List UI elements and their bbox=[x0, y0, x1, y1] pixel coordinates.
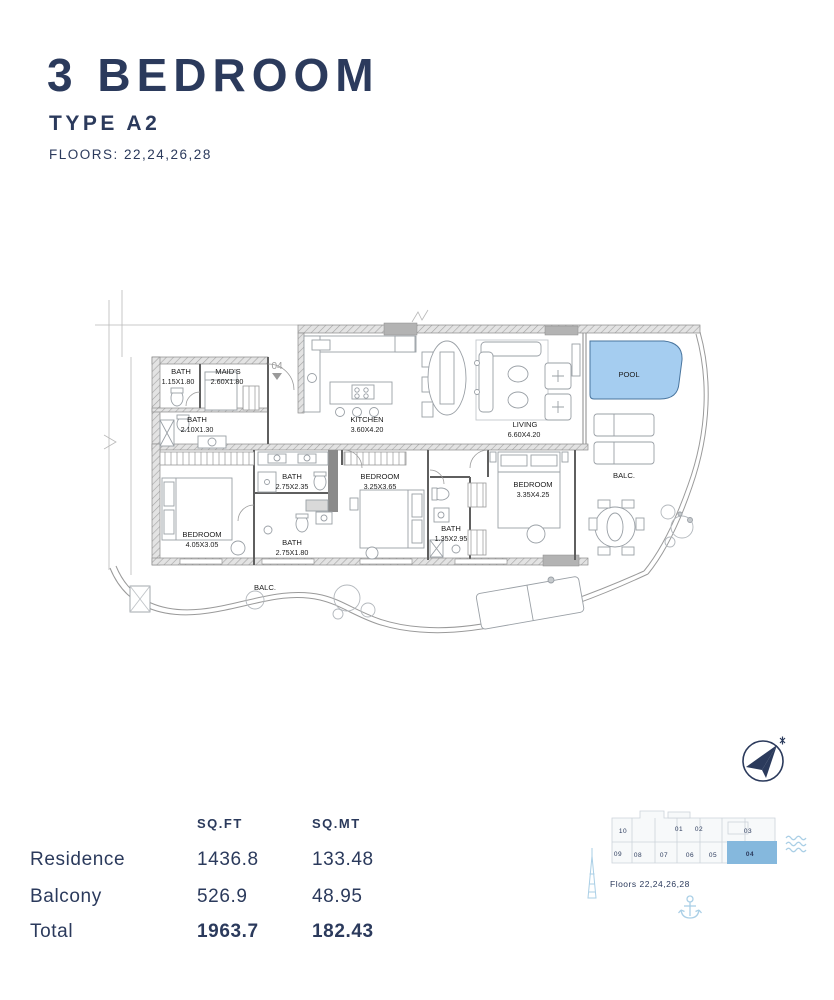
room-label: LIVING bbox=[513, 420, 538, 429]
room-dims: 3.25X3.65 bbox=[364, 482, 397, 491]
residence-sqmt: 133.48 bbox=[312, 849, 374, 871]
keyplan-unit: 09 bbox=[614, 851, 622, 858]
room-dims: 2.75X1.80 bbox=[276, 548, 309, 557]
pool-label: POOL bbox=[618, 370, 639, 379]
keyplan-unit: 02 bbox=[695, 826, 703, 833]
right-balcony-furniture bbox=[589, 414, 693, 555]
balcony-label: BALC. bbox=[613, 471, 635, 480]
room-dims: 6.60X4.20 bbox=[508, 430, 541, 439]
keyplan-caption: Floors 22,24,26,28 bbox=[610, 879, 690, 889]
col-header-sqft: SQ.FT bbox=[197, 816, 243, 831]
room-label: BATH bbox=[441, 524, 461, 533]
room-label: BEDROOM bbox=[182, 530, 221, 539]
north-compass-icon bbox=[735, 728, 795, 790]
room-dims: 2.60X1.80 bbox=[211, 377, 244, 386]
floors-label: FLOORS: 22,24,26,28 bbox=[49, 147, 212, 162]
row-label-residence: Residence bbox=[30, 849, 125, 871]
room-dims: 3.60X4.20 bbox=[351, 425, 384, 434]
living-furniture bbox=[422, 340, 580, 420]
balcony-label: BALC. bbox=[254, 583, 276, 592]
kitchen-furniture bbox=[304, 336, 416, 417]
room-label: BEDROOM bbox=[360, 472, 399, 481]
room-dims: 2.10X1.30 bbox=[181, 425, 214, 434]
keyplan-unit: 07 bbox=[660, 852, 668, 859]
keyplan-unit: 06 bbox=[686, 852, 694, 859]
keyplan-unit: 01 bbox=[675, 826, 683, 833]
keyplan-unit: 03 bbox=[744, 828, 752, 835]
keyplan-unit: 10 bbox=[619, 828, 627, 835]
plumbing-wall bbox=[328, 450, 338, 512]
room-label: BATH bbox=[282, 472, 302, 481]
page-title: 3 BEDROOM bbox=[47, 48, 380, 102]
keyplan-unit-highlighted: 04 bbox=[746, 851, 754, 858]
unit-type-label: TYPE A2 bbox=[49, 112, 160, 136]
room-dims: 4.05X3.05 bbox=[186, 540, 219, 549]
floorplan-page: 3 BEDROOM TYPE A2 FLOORS: 22,24,26,28 bbox=[0, 0, 834, 1000]
anchor-icon bbox=[679, 896, 702, 918]
room-label: BATH bbox=[282, 538, 302, 547]
row-label-total: Total bbox=[30, 921, 73, 943]
residence-sqft: 1436.8 bbox=[197, 849, 259, 871]
col-header-sqmt: SQ.MT bbox=[312, 816, 361, 831]
room-label: KITCHEN bbox=[350, 415, 383, 424]
entry-unit-marker: 04 bbox=[271, 361, 283, 380]
bottom-balcony-furniture bbox=[130, 576, 584, 630]
room-label: BATH bbox=[171, 367, 191, 376]
key-plan: 10 01 02 03 09 08 07 06 05 04 Floors 22,… bbox=[575, 785, 820, 935]
total-sqmt: 182.43 bbox=[312, 921, 374, 943]
room-dims: 3.35X4.25 bbox=[517, 490, 550, 499]
room-dims: 1.35X2.95 bbox=[435, 534, 468, 543]
row-label-balcony: Balcony bbox=[30, 886, 102, 908]
total-sqft: 1963.7 bbox=[197, 921, 259, 943]
keyplan-unit: 08 bbox=[634, 852, 642, 859]
room-label: MAID'S bbox=[215, 367, 241, 376]
room-label: BEDROOM bbox=[513, 480, 552, 489]
room-label: BATH bbox=[187, 415, 207, 424]
balcony-sqft: 526.9 bbox=[197, 886, 248, 908]
room-dims: 2.75X2.35 bbox=[276, 482, 309, 491]
balcony-sqmt: 48.95 bbox=[312, 886, 363, 908]
floor-plan: 04 BATH 1.15X1.80 MAID'S 2.60X1.80 BATH … bbox=[90, 285, 750, 680]
keyplan-unit: 05 bbox=[709, 852, 717, 859]
waves-icon bbox=[786, 836, 806, 852]
room-dims: 1.15X1.80 bbox=[162, 377, 195, 386]
entry-unit-number: 04 bbox=[271, 361, 283, 372]
tower-icon bbox=[588, 848, 596, 898]
